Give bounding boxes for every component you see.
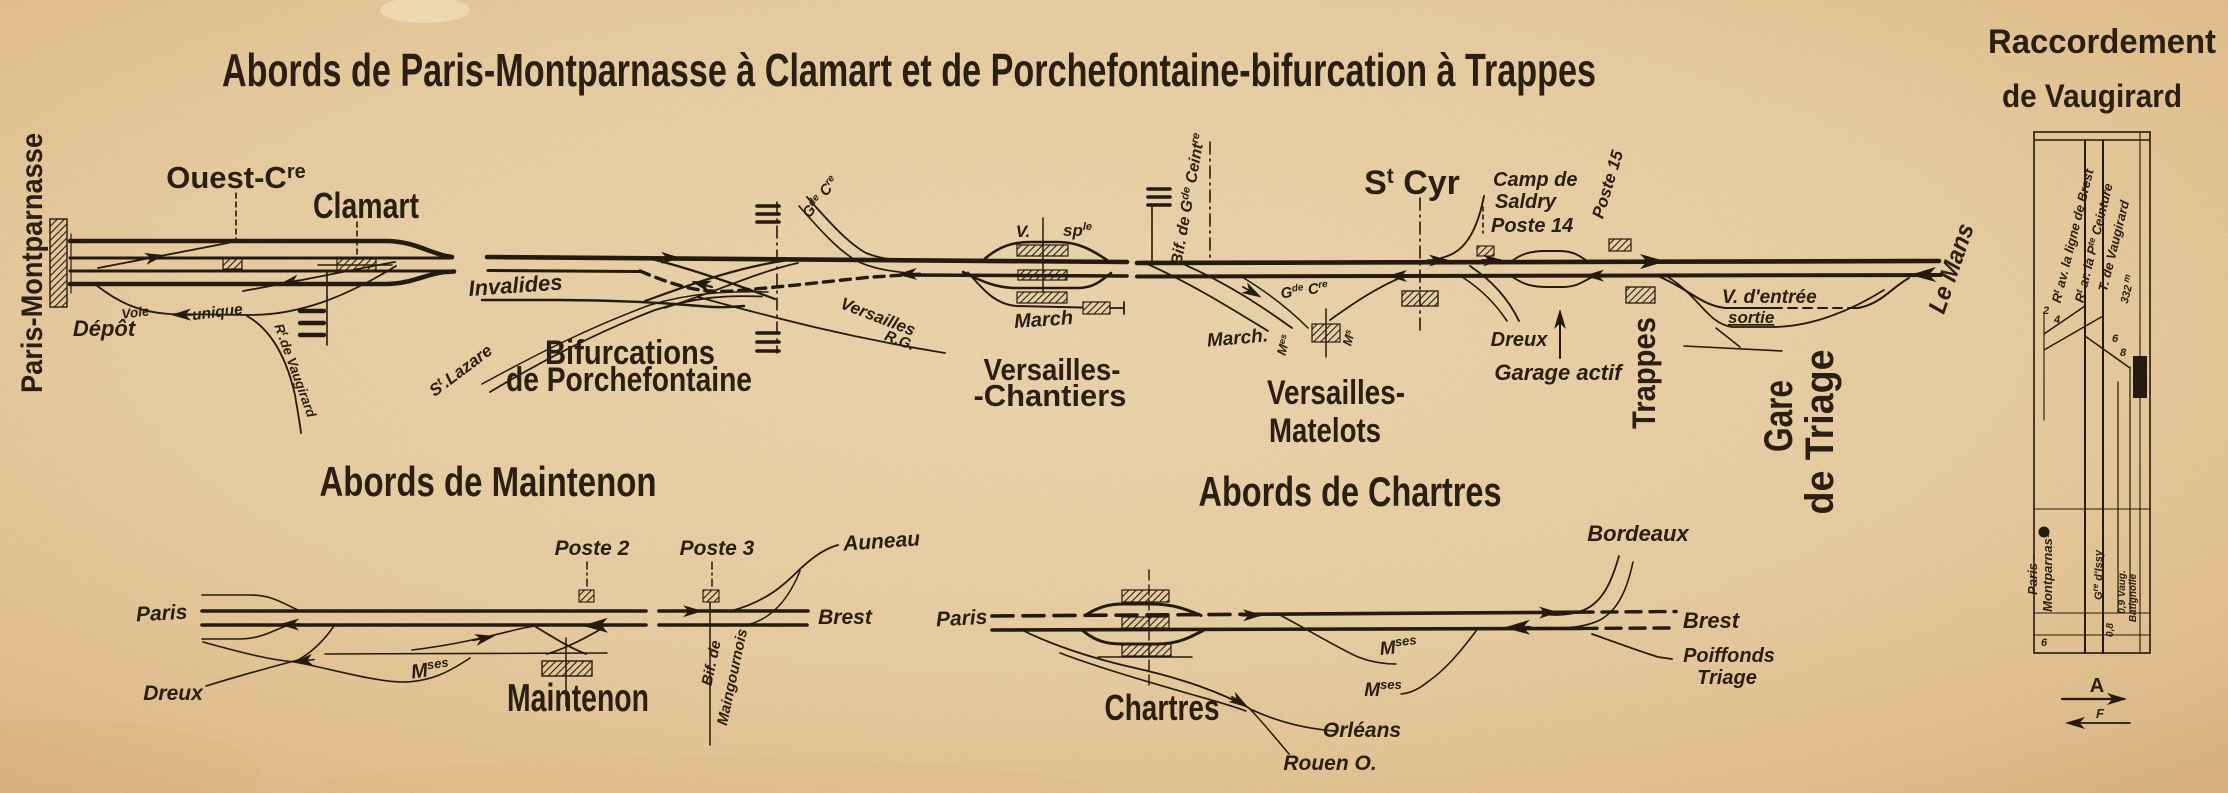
svg-text:Clamart: Clamart	[313, 185, 419, 226]
svg-text:F: F	[2096, 706, 2105, 721]
svg-text:-Chantiers: -Chantiers	[974, 378, 1127, 413]
svg-text:0,9 Vaug.: 0,9 Vaug.	[2117, 570, 2128, 614]
svg-text:Abords de Maintenon: Abords de Maintenon	[320, 458, 657, 505]
svg-text:Dépôt: Dépôt	[73, 316, 137, 341]
svg-text:Paris: Paris	[935, 606, 988, 632]
svg-text:Abords de Chartres: Abords de Chartres	[1199, 468, 1502, 515]
svg-text:Raccordement: Raccordement	[1988, 23, 2216, 61]
svg-text:Gare: Gare	[1757, 380, 1801, 452]
svg-text:March: March	[1013, 307, 1073, 333]
svg-text:6: 6	[2112, 333, 2119, 345]
svg-text:V. d'entrée: V. d'entrée	[1722, 287, 1817, 308]
svg-text:Poste 2: Poste 2	[555, 537, 630, 560]
svg-text:de Vaugirard: de Vaugirard	[2002, 78, 2182, 114]
svg-text:St Cyr: St Cyr	[1364, 164, 1460, 202]
svg-text:Paris-Montparnasse: Paris-Montparnasse	[16, 133, 49, 393]
svg-text:Gre d'Issy: Gre d'Issy	[2091, 549, 2105, 600]
svg-text:Paris: Paris	[135, 601, 188, 627]
svg-text:Abords de Paris-Montparnasse à: Abords de Paris-Montparnasse à Clamart e…	[222, 44, 1596, 96]
svg-text:Trappes: Trappes	[1626, 317, 1662, 429]
svg-text:8: 8	[2120, 347, 2127, 359]
svg-text:Poiffonds: Poiffonds	[1683, 645, 1775, 667]
svg-text:Saldry: Saldry	[1495, 191, 1557, 213]
svg-text:de Porchefontaine: de Porchefontaine	[506, 361, 752, 399]
svg-text:Versailles-: Versailles-	[1267, 374, 1405, 412]
svg-text:Ouest-Cre: Ouest-Cre	[166, 160, 305, 195]
svg-text:Poste 14: Poste 14	[1491, 215, 1573, 237]
svg-text:A: A	[2090, 675, 2104, 697]
svg-text:4: 4	[2053, 314, 2060, 326]
svg-text:sortie: sortie	[1728, 308, 1774, 327]
svg-text:6: 6	[2041, 637, 2048, 649]
svg-text:Triage: Triage	[1697, 667, 1757, 689]
svg-text:V.: V.	[1016, 222, 1031, 241]
svg-text:Bordeaux: Bordeaux	[1587, 521, 1689, 546]
svg-text:Dreux: Dreux	[1491, 329, 1549, 351]
svg-text:Chartres: Chartres	[1105, 687, 1220, 728]
svg-text:Dreux: Dreux	[143, 682, 204, 705]
svg-text:Maintenon: Maintenon	[507, 677, 649, 720]
svg-text:Rouen O.: Rouen O.	[1283, 752, 1376, 775]
svg-text:Batignolle: Batignolle	[2128, 573, 2139, 622]
svg-text:Matelots: Matelots	[1269, 412, 1381, 450]
svg-text:Paris -: Paris -	[2025, 555, 2040, 595]
svg-text:de Triage: de Triage	[1798, 350, 1842, 515]
svg-text:Camp de: Camp de	[1493, 169, 1577, 191]
svg-text:0,8: 0,8	[2105, 623, 2116, 637]
svg-text:Poste 3: Poste 3	[680, 537, 755, 560]
svg-text:2: 2	[2042, 305, 2049, 317]
svg-text:Orléans: Orléans	[1323, 719, 1401, 742]
svg-text:Brest: Brest	[1683, 608, 1741, 633]
svg-text:Brest: Brest	[818, 606, 873, 629]
svg-text:Montparnasˢᵉ: Montparnasˢᵉ	[2040, 527, 2055, 612]
svg-text:Garage actif: Garage actif	[1494, 360, 1624, 385]
